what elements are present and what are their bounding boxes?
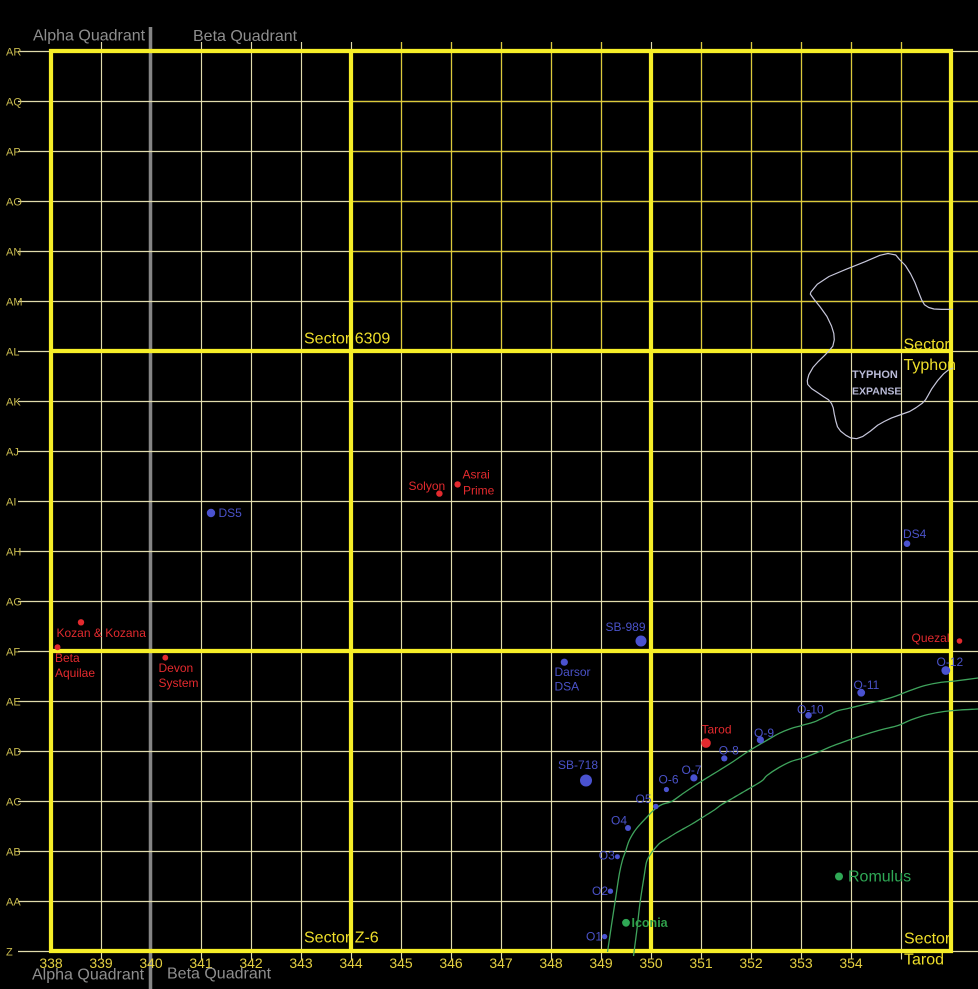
- svg-text:Quezal: Quezal: [912, 631, 950, 645]
- svg-text:AJ: AJ: [6, 447, 19, 459]
- svg-text:353: 353: [789, 955, 813, 971]
- svg-text:Beta Quadrant: Beta Quadrant: [167, 966, 272, 983]
- svg-text:AI: AI: [6, 497, 16, 509]
- svg-text:AA: AA: [6, 897, 21, 909]
- svg-text:AG: AG: [6, 597, 22, 609]
- svg-text:343: 343: [289, 955, 313, 971]
- svg-text:AM: AM: [6, 297, 23, 309]
- svg-text:DS5: DS5: [219, 506, 243, 520]
- svg-text:Devon: Devon: [159, 661, 194, 675]
- svg-text:Sector: Sector: [904, 931, 951, 948]
- svg-text:354: 354: [839, 955, 863, 971]
- svg-text:AK: AK: [6, 397, 21, 409]
- svg-text:348: 348: [539, 955, 563, 971]
- svg-text:Beta Quadrant: Beta Quadrant: [193, 28, 298, 45]
- svg-text:AO: AO: [6, 197, 22, 209]
- svg-text:O-9: O-9: [754, 726, 774, 740]
- svg-text:Prime: Prime: [463, 483, 495, 497]
- svg-text:DSA: DSA: [555, 679, 580, 693]
- svg-text:Alpha Quadrant: Alpha Quadrant: [33, 28, 146, 45]
- svg-text:AR: AR: [6, 47, 21, 59]
- svg-text:TYPHON: TYPHON: [852, 369, 898, 381]
- svg-text:O4: O4: [611, 813, 627, 827]
- svg-text:AE: AE: [6, 697, 21, 709]
- svg-text:AP: AP: [6, 147, 21, 159]
- svg-text:O-8: O-8: [719, 744, 739, 758]
- svg-text:EXPANSE: EXPANSE: [852, 386, 901, 398]
- svg-text:Typhon: Typhon: [904, 357, 956, 374]
- svg-text:AL: AL: [6, 347, 19, 359]
- svg-text:350: 350: [639, 955, 663, 971]
- svg-text:Tarod: Tarod: [904, 952, 944, 969]
- svg-text:AB: AB: [6, 847, 21, 859]
- svg-text:Alpha Quadrant: Alpha Quadrant: [32, 967, 145, 984]
- svg-text:Darsor: Darsor: [555, 665, 591, 679]
- svg-text:349: 349: [589, 955, 613, 971]
- svg-text:O3: O3: [599, 849, 615, 863]
- svg-text:O2: O2: [592, 884, 608, 898]
- svg-text:AD: AD: [6, 747, 21, 759]
- svg-text:Solyon: Solyon: [409, 479, 446, 493]
- svg-text:DS4: DS4: [903, 527, 927, 541]
- svg-text:347: 347: [489, 955, 513, 971]
- svg-text:Aquilae: Aquilae: [55, 666, 95, 680]
- svg-text:O-10: O-10: [797, 702, 824, 716]
- svg-text:O1: O1: [586, 930, 602, 944]
- svg-text:O-11: O-11: [854, 678, 880, 692]
- svg-text:Z: Z: [6, 947, 13, 959]
- svg-text:AN: AN: [6, 247, 21, 259]
- svg-text:Asrai: Asrai: [463, 468, 490, 482]
- svg-text:AF: AF: [6, 647, 20, 659]
- svg-text:AC: AC: [6, 797, 21, 809]
- svg-text:AH: AH: [6, 547, 21, 559]
- svg-text:O-12: O-12: [937, 655, 964, 669]
- svg-text:Sector Z-6: Sector Z-6: [304, 930, 379, 947]
- svg-text:SB-718: SB-718: [558, 758, 598, 772]
- svg-text:Tarod: Tarod: [702, 722, 732, 736]
- svg-text:Iconia: Iconia: [632, 916, 669, 930]
- svg-text:Sector 6309: Sector 6309: [304, 331, 390, 348]
- svg-text:346: 346: [439, 955, 463, 971]
- svg-text:Kozan & Kozana: Kozan & Kozana: [57, 626, 147, 640]
- svg-text:SB-989: SB-989: [606, 620, 646, 634]
- svg-text:O5: O5: [636, 792, 652, 806]
- svg-text:Beta: Beta: [55, 651, 80, 665]
- svg-text:Sector: Sector: [904, 337, 951, 354]
- svg-text:O-6: O-6: [659, 772, 679, 786]
- svg-text:344: 344: [339, 955, 363, 971]
- svg-text:O-7: O-7: [682, 763, 702, 777]
- svg-text:345: 345: [389, 955, 413, 971]
- svg-text:AQ: AQ: [6, 97, 22, 109]
- svg-text:351: 351: [689, 955, 713, 971]
- svg-text:System: System: [159, 676, 199, 690]
- svg-text:Romulus: Romulus: [848, 868, 911, 885]
- svg-text:352: 352: [739, 955, 763, 971]
